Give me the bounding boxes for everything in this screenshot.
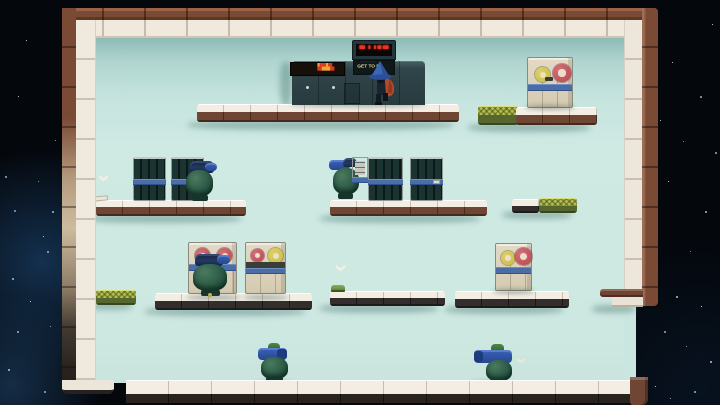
reel-machine <box>245 242 286 294</box>
star <box>668 181 669 182</box>
star <box>655 386 656 387</box>
shadow <box>243 295 288 300</box>
shadow <box>525 105 575 110</box>
star <box>660 120 661 121</box>
machine-blue-band <box>528 84 572 91</box>
platform-mid-right <box>512 199 539 213</box>
star <box>43 236 44 237</box>
led-glyphs: ▀▘▝ ▘▀▝▀ <box>356 44 392 56</box>
sleeping-pod <box>193 254 233 298</box>
left-wall-cap <box>62 380 114 394</box>
star <box>30 301 31 302</box>
console-hatch <box>344 83 360 104</box>
star <box>52 211 54 213</box>
star <box>672 62 673 63</box>
star <box>55 140 56 141</box>
star <box>670 398 671 399</box>
platform-mid-center <box>330 200 487 216</box>
machine-slot <box>545 77 553 81</box>
star <box>705 211 707 213</box>
star <box>686 346 687 347</box>
star <box>712 24 713 25</box>
sleeping-pod <box>258 343 291 385</box>
star <box>690 251 691 252</box>
star <box>694 391 696 393</box>
star <box>664 331 666 333</box>
floor-tiles <box>126 380 636 394</box>
vent-panel <box>410 157 443 201</box>
star <box>47 251 49 253</box>
star <box>17 331 19 333</box>
console-led-display: ▀▘▝ ▘▀▝▀ <box>352 40 396 60</box>
room-interior-lower <box>624 306 636 383</box>
right-wall-trim <box>642 8 658 306</box>
floor-underside <box>126 394 636 403</box>
left-wall-tiles <box>76 20 96 386</box>
platform-top-right-moss <box>478 106 518 125</box>
star <box>26 40 27 41</box>
star <box>701 306 702 307</box>
shadow <box>186 295 241 300</box>
star <box>5 176 7 178</box>
console-button <box>332 86 335 89</box>
floor-right-cap <box>630 377 648 405</box>
star <box>44 391 46 393</box>
reel-icon-red <box>553 64 571 82</box>
platform-low-center <box>330 291 445 306</box>
star <box>12 278 14 280</box>
player-character <box>367 60 399 105</box>
right-wall-ledge <box>600 289 643 307</box>
star <box>715 152 717 154</box>
reel-icon-red <box>515 248 532 265</box>
star <box>38 181 39 182</box>
star <box>8 369 10 371</box>
machine-blue-band <box>246 268 285 274</box>
star <box>50 326 51 327</box>
reel-machine <box>495 243 532 291</box>
machine-blue-band <box>352 177 368 183</box>
reel-icon-yellow <box>268 248 283 263</box>
marquee-glyphs: ▟▀ <box>318 63 326 71</box>
reel-machine-top-right <box>527 57 573 108</box>
star <box>683 141 684 142</box>
sleeping-pod <box>472 343 514 385</box>
console-button <box>306 86 309 89</box>
big-console: ▙▀▟▙▀▟▙▟▀ ▀▘▝ ▘▀▝▀ GET TO DA ··· ····· ·… <box>288 40 428 106</box>
shadow <box>493 289 534 294</box>
star <box>700 96 702 98</box>
star <box>14 210 16 212</box>
platform-mid-left <box>96 200 246 216</box>
console-led-marquee: ▙▀▟▙▀▟▙▟▀ <box>290 62 345 76</box>
machine-blue-band <box>496 267 531 274</box>
vent-panel <box>133 157 166 201</box>
left-wall-trim <box>62 8 76 392</box>
platform-moss-wall-left <box>96 290 136 305</box>
star <box>18 96 19 97</box>
reel-icon-yellow <box>501 251 515 265</box>
game-canvas[interactable]: ▙▀▟▙▀▟▙▟▀ ▀▘▝ ▘▀▝▀ GET TO DA ··· ····· ·… <box>0 0 720 405</box>
right-wall-tiles <box>624 20 642 306</box>
top-wall-trim <box>62 8 658 20</box>
top-wall-tiles <box>62 20 658 38</box>
notice-panel <box>352 157 368 179</box>
reel-icon-red <box>251 249 264 262</box>
vent-panel <box>368 157 403 201</box>
star <box>710 361 712 363</box>
sleeping-pod <box>184 161 218 202</box>
green-prop <box>331 285 345 292</box>
platform-mid-right-moss <box>539 198 577 213</box>
star <box>676 296 678 298</box>
panel-label <box>433 180 440 184</box>
